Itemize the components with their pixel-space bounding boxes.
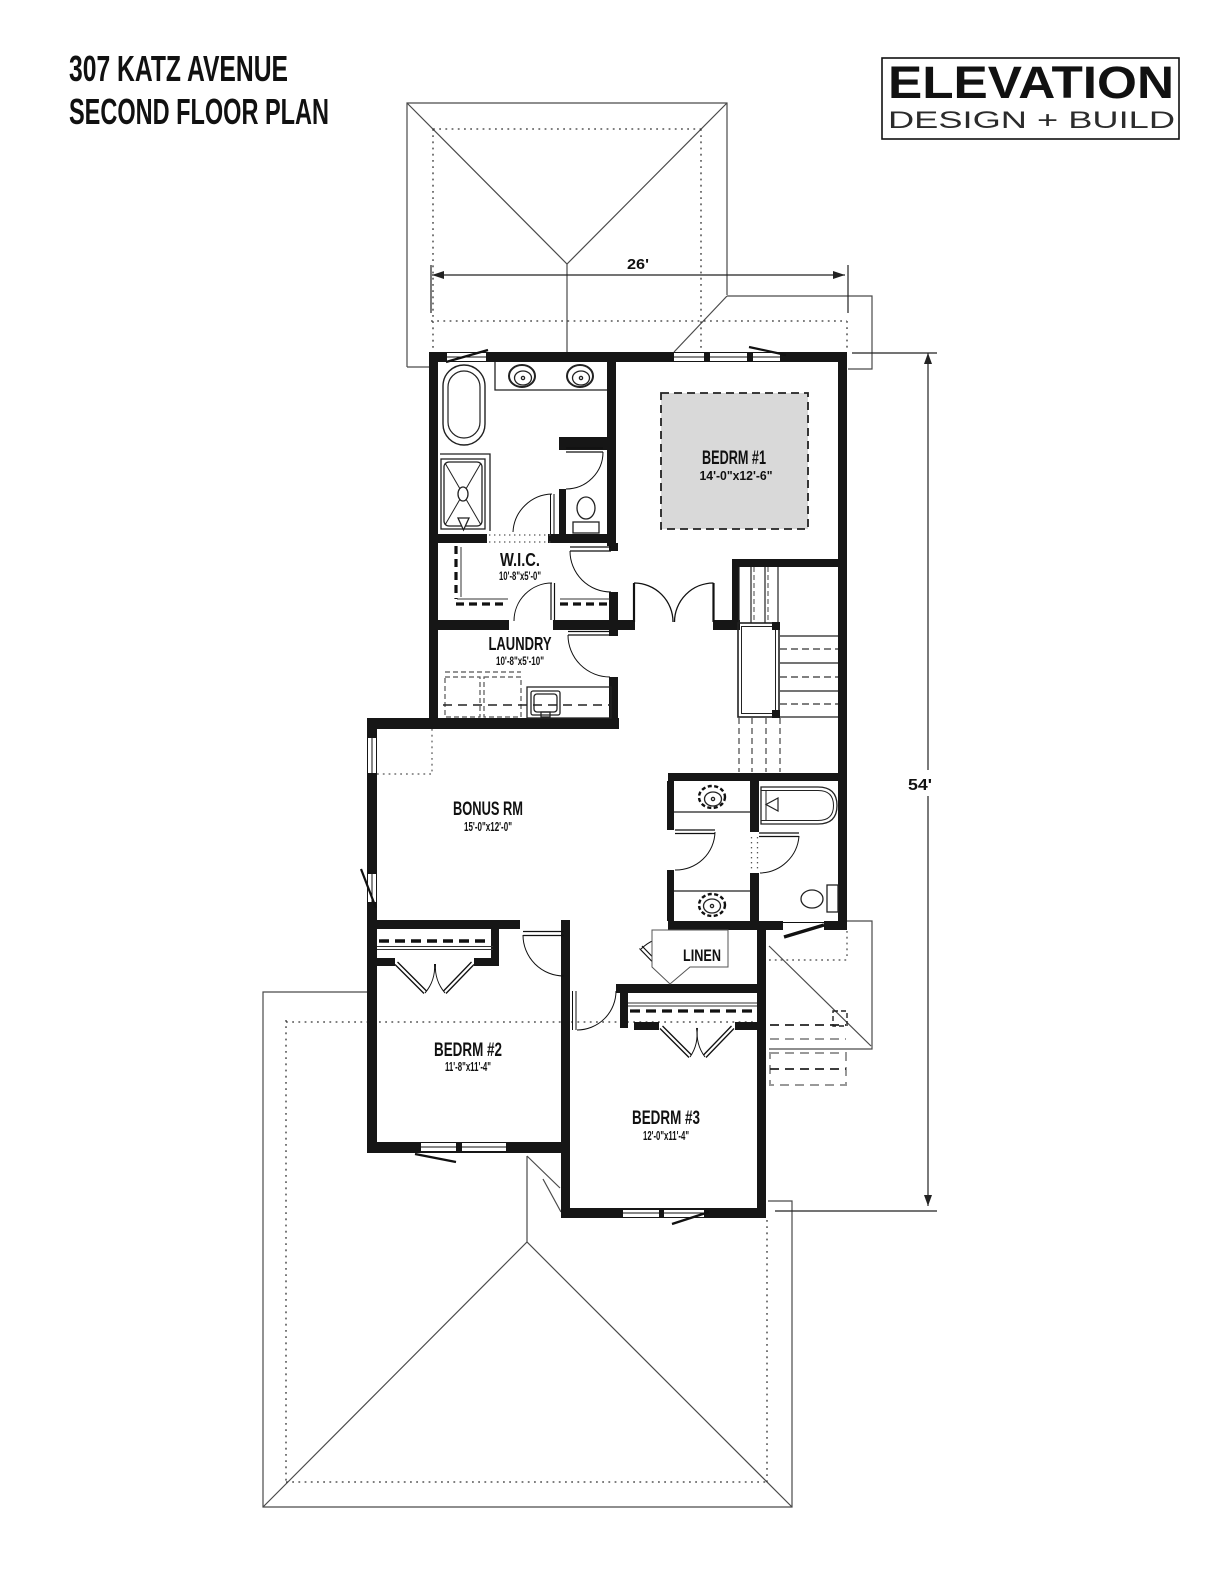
svg-text:DESIGN + BUILD: DESIGN + BUILD [888,107,1175,134]
svg-text:15'-0"x12'-0": 15'-0"x12'-0" [464,820,512,834]
svg-text:BEDRM #2: BEDRM #2 [434,1040,502,1061]
svg-text:BEDRM #1: BEDRM #1 [702,448,766,469]
svg-text:LINEN: LINEN [683,946,721,965]
svg-text:10'-8"x5'-10": 10'-8"x5'-10" [496,656,544,668]
svg-text:LAUNDRY: LAUNDRY [489,634,552,654]
svg-text:BEDRM #3: BEDRM #3 [632,1108,700,1129]
svg-text:BONUS RM: BONUS RM [453,799,523,820]
svg-text:12'-0"x11'-4": 12'-0"x11'-4" [643,1129,689,1143]
svg-text:54': 54' [908,777,932,794]
svg-text:11'-8"x11'-4": 11'-8"x11'-4" [445,1060,491,1074]
svg-text:W.I.C.: W.I.C. [500,550,540,570]
svg-text:10'-8"x5'-0": 10'-8"x5'-0" [499,571,541,583]
svg-text:14'-0"x12'-6": 14'-0"x12'-6" [700,469,773,483]
svg-text:26': 26' [627,256,649,273]
svg-text:SECOND FLOOR PLAN: SECOND FLOOR PLAN [69,91,329,132]
svg-text:307 KATZ AVENUE: 307 KATZ AVENUE [69,48,288,89]
svg-text:ELEVATION: ELEVATION [888,57,1174,108]
